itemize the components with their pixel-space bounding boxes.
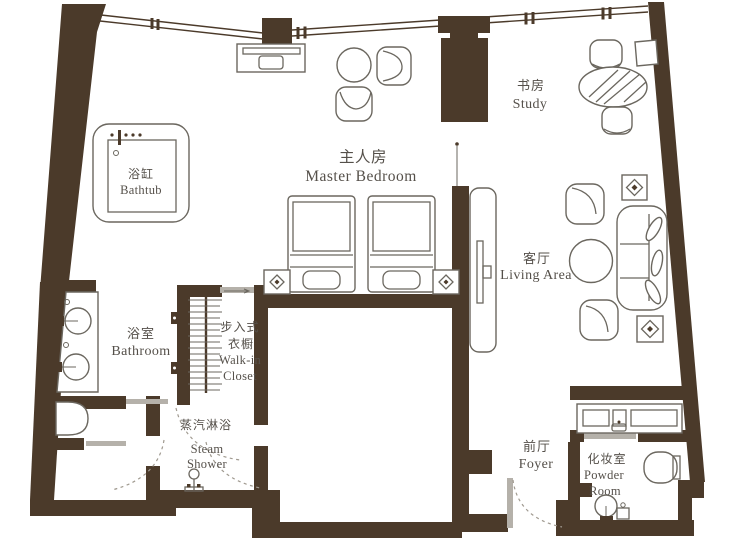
room-label-bathtub-zh: 浴缸 (128, 166, 154, 181)
door-leaf (86, 441, 126, 446)
side-table-icon (637, 316, 663, 342)
room-label-foyer-en: Foyer (519, 457, 554, 472)
room-label-closet-en1: Walk-in (219, 353, 262, 367)
bedroom-seating (336, 47, 411, 121)
armchair-icon (377, 47, 411, 85)
floor-plan: 浴缸 Bathtub 浴室 Bathroom 步入式 衣橱 Walk-in Cl… (0, 0, 750, 540)
room-label-bathroom-en: Bathroom (111, 344, 170, 359)
room-label-shower-en2: Shower (187, 457, 228, 471)
room-label-shower-zh: 蒸汽淋浴 (180, 417, 232, 432)
pocket-door-leaf (584, 433, 636, 439)
chair-icon (602, 107, 632, 134)
room-label-living-zh: 客厅 (523, 251, 551, 266)
room-label-powder-en2: Room (589, 484, 621, 498)
floor-plan-svg: 浴缸 Bathtub 浴室 Bathroom 步入式 衣橱 Walk-in Cl… (0, 0, 750, 540)
room-label-powder-en1: Powder (584, 468, 625, 482)
door-leaf (126, 399, 168, 404)
sink-icon (595, 495, 629, 524)
tv-console-icon (470, 188, 496, 352)
study-furniture (579, 40, 658, 134)
sliding-door-leaf (220, 287, 254, 293)
room-label-living-en: Living Area (500, 268, 572, 283)
chair-icon (590, 40, 622, 68)
room-label-closet-zh2: 衣橱 (228, 336, 254, 351)
sofa-icon (617, 206, 667, 310)
round-table-icon (337, 48, 371, 82)
room-label-study-en: Study (513, 97, 548, 112)
toilet-icon (48, 402, 88, 435)
room-label-bathroom-zh: 浴室 (127, 326, 155, 341)
room-label-study-zh: 书房 (517, 78, 545, 93)
armchair-icon (566, 184, 604, 224)
room-label-closet-zh1: 步入式 (220, 320, 259, 334)
study-table-icon (579, 67, 647, 107)
divider-line (455, 142, 459, 186)
armchair-icon (580, 300, 618, 340)
window-wall (100, 6, 648, 39)
room-label-closet-en2: Closet (223, 369, 257, 383)
side-table-icon (622, 175, 647, 200)
shower-icon (185, 469, 203, 491)
desk-icon (237, 44, 305, 72)
room-label-bathtub-en: Bathtub (120, 183, 162, 197)
room-label-shower-en1: Steam (191, 442, 224, 456)
console-icon (577, 404, 682, 433)
side-table-icon (635, 40, 658, 66)
nightstand-icon (264, 270, 290, 294)
nightstand-icon (433, 270, 459, 294)
bed-icon (288, 196, 355, 292)
coffee-table-icon (570, 240, 613, 283)
bed-icon (368, 196, 435, 292)
living-furniture (470, 175, 667, 352)
room-label-foyer-zh: 前厅 (523, 439, 551, 454)
entry-door-swing-arc (513, 480, 562, 527)
armchair-icon (336, 87, 372, 121)
toilet-icon (644, 452, 680, 483)
room-label-bedroom-en: Master Bedroom (305, 168, 417, 185)
room-label-bedroom-zh: 主人房 (339, 148, 387, 166)
entry-door-leaf (507, 478, 513, 528)
room-label-powder-zh: 化妆室 (587, 451, 626, 466)
